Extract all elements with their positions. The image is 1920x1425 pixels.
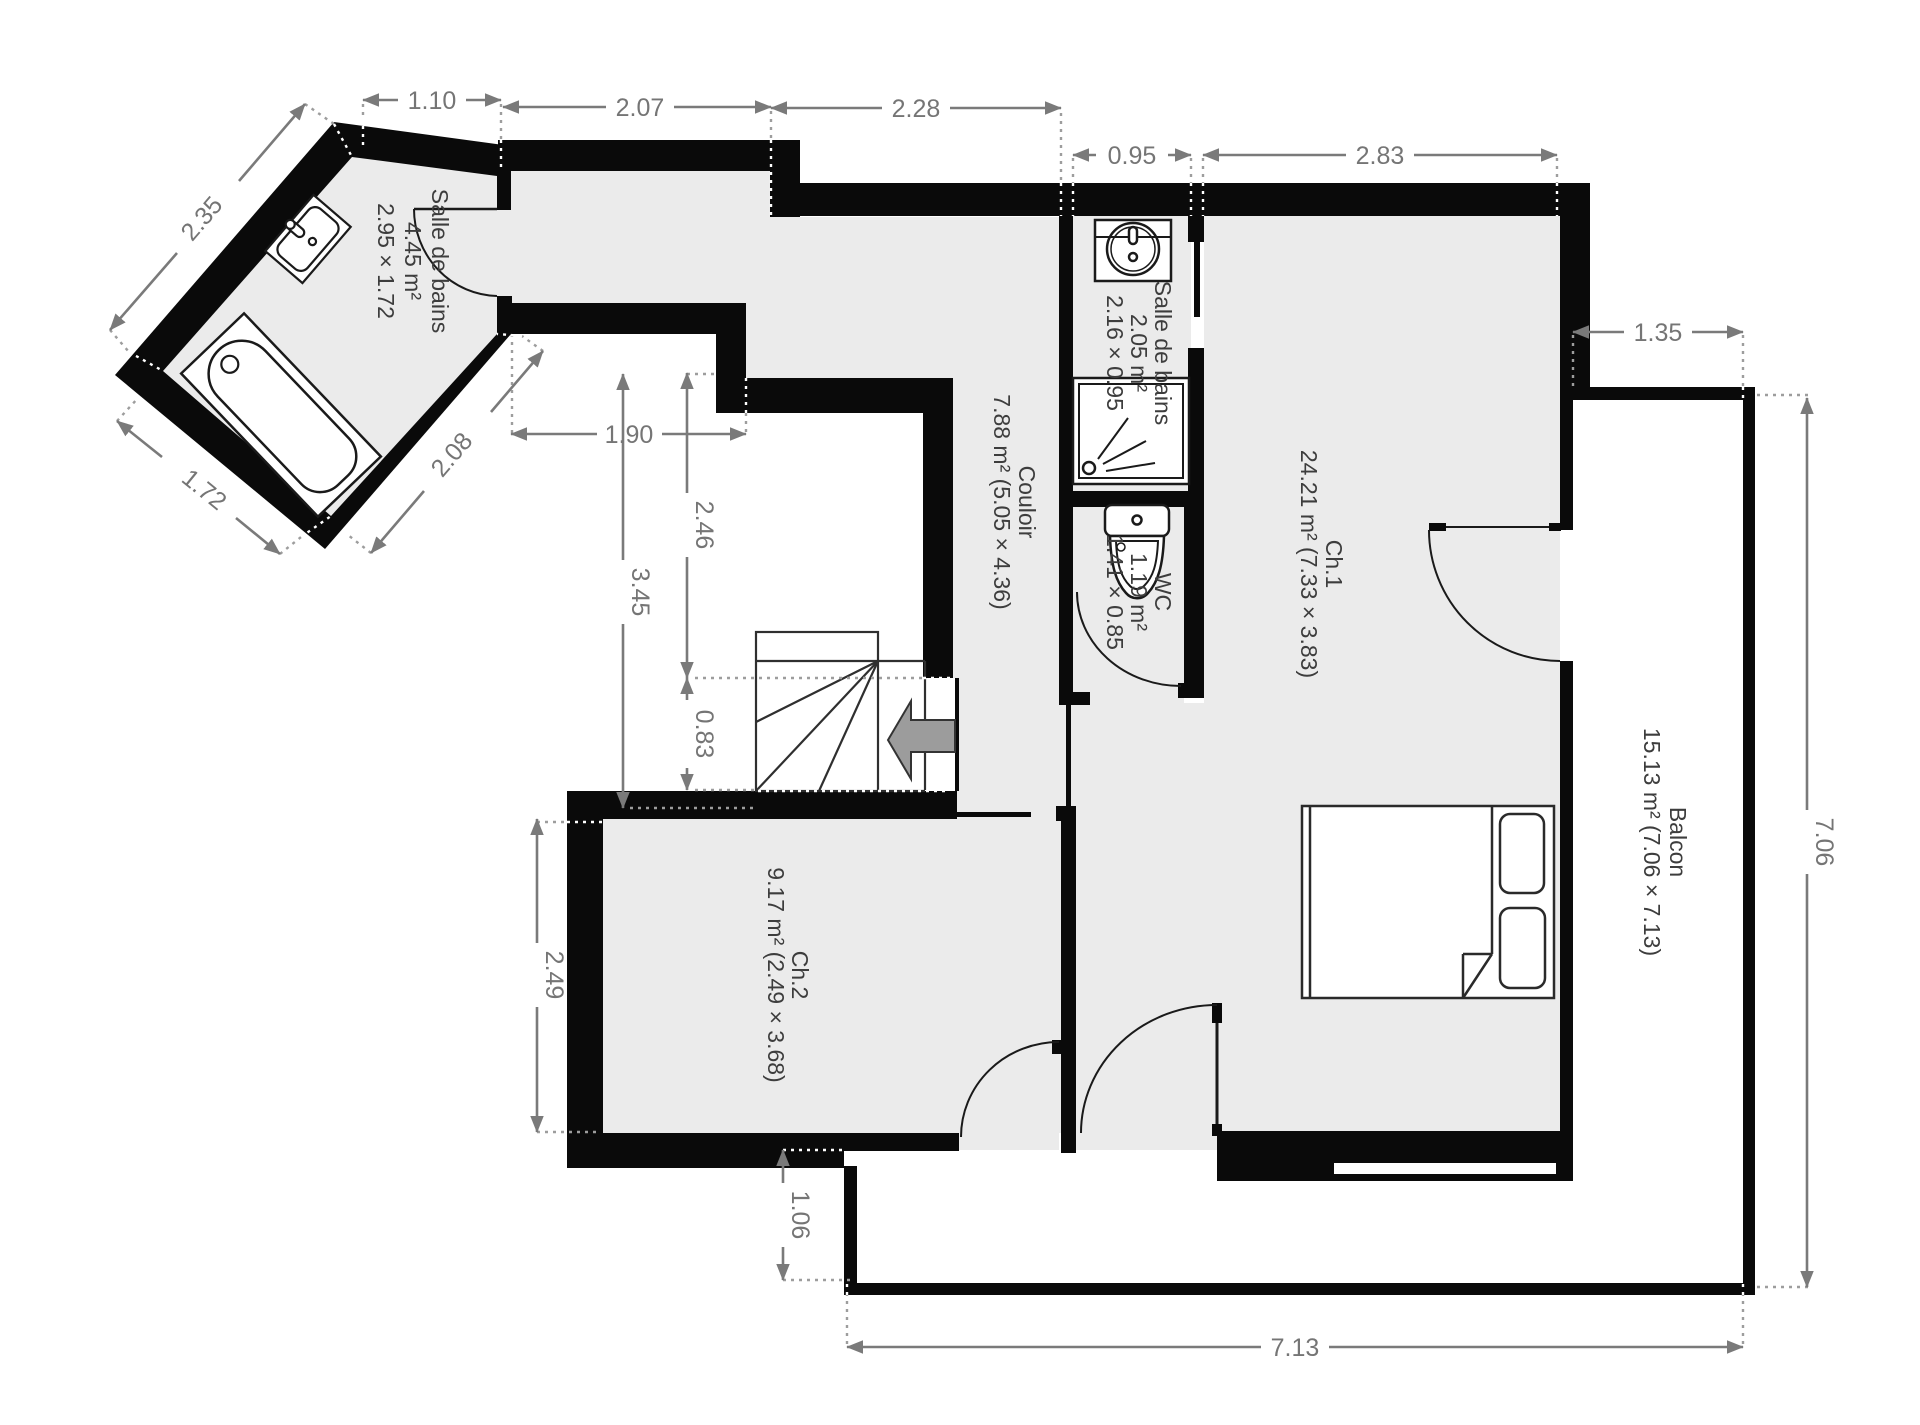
svg-text:2.49: 2.49 <box>540 951 568 1000</box>
svg-text:4.45 m²: 4.45 m² <box>400 222 426 300</box>
svg-text:2.07: 2.07 <box>616 94 665 122</box>
svg-text:0.95: 0.95 <box>1108 142 1157 170</box>
svg-text:Salle de bains: Salle de bains <box>1150 281 1176 426</box>
svg-text:9.17 m² (2.49 × 3.68): 9.17 m² (2.49 × 3.68) <box>763 867 789 1082</box>
svg-text:Salle de bains: Salle de bains <box>427 189 453 334</box>
svg-text:1.41 × 0.85: 1.41 × 0.85 <box>1102 534 1128 650</box>
svg-text:Balcon: Balcon <box>1665 807 1691 877</box>
svg-text:Couloir: Couloir <box>1014 466 1040 539</box>
svg-text:1.10: 1.10 <box>408 87 457 115</box>
svg-text:2.46: 2.46 <box>690 501 718 550</box>
svg-text:2.83: 2.83 <box>1356 142 1405 170</box>
svg-text:1.06: 1.06 <box>786 1191 814 1240</box>
svg-text:2.28: 2.28 <box>892 95 941 123</box>
svg-text:0.83: 0.83 <box>690 710 718 759</box>
svg-text:Ch.1: Ch.1 <box>1321 540 1347 589</box>
svg-text:WC: WC <box>1150 573 1176 611</box>
svg-text:7.88 m² (5.05 × 4.36): 7.88 m² (5.05 × 4.36) <box>989 394 1015 609</box>
svg-text:2.16 × 0.95: 2.16 × 0.95 <box>1102 295 1128 411</box>
svg-text:1.35: 1.35 <box>1634 319 1683 347</box>
svg-text:1.19 m²: 1.19 m² <box>1126 553 1152 631</box>
svg-text:2.95 × 1.72: 2.95 × 1.72 <box>373 203 399 319</box>
svg-text:7.13: 7.13 <box>1271 1334 1320 1362</box>
svg-text:7.06: 7.06 <box>1810 818 1838 867</box>
svg-text:15.13 m² (7.06 × 7.13): 15.13 m² (7.06 × 7.13) <box>1639 728 1665 956</box>
svg-text:24.21 m² (7.33 × 3.83): 24.21 m² (7.33 × 3.83) <box>1296 450 1322 678</box>
svg-text:2.05 m²: 2.05 m² <box>1126 314 1152 392</box>
svg-text:3.45: 3.45 <box>626 568 654 617</box>
svg-text:1.90: 1.90 <box>605 421 654 449</box>
svg-text:Ch.2: Ch.2 <box>787 951 813 1000</box>
